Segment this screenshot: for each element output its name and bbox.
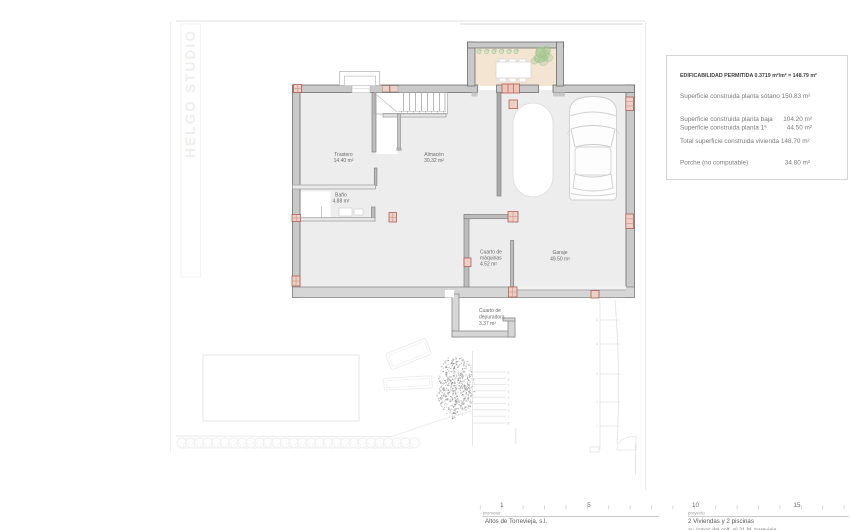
svg-text:4.88 m²: 4.88 m² xyxy=(333,199,350,205)
svg-text:proyecto: proyecto xyxy=(688,511,705,516)
svg-text:3.37 m²: 3.37 m² xyxy=(479,321,496,327)
svg-text:depuradora: depuradora xyxy=(479,315,505,321)
svg-text:1: 1 xyxy=(500,502,504,509)
svg-text:2: 2 xyxy=(596,400,598,404)
svg-text:1: 1 xyxy=(596,424,598,428)
svg-text:3: 3 xyxy=(596,372,598,376)
svg-text:2: 2 xyxy=(508,415,510,419)
svg-text:3: 3 xyxy=(508,409,510,413)
svg-text:8: 8 xyxy=(508,377,510,381)
svg-text:104.20 m²: 104.20 m² xyxy=(783,116,812,123)
svg-text:14.40 m²: 14.40 m² xyxy=(334,158,354,164)
svg-text:4.52 m²: 4.52 m² xyxy=(480,262,497,268)
svg-text:Superficie construida planta s: Superficie construida planta sótano 150.… xyxy=(680,93,810,100)
svg-text:5: 5 xyxy=(508,396,510,400)
svg-text:Superficie construida planta 1: Superficie construida planta 1ª xyxy=(680,125,767,132)
svg-text:EDIFICABILIDAD PERMITIDA 0.371: EDIFICABILIDAD PERMITIDA 0.3719 m²/m² = … xyxy=(680,73,817,79)
svg-text:10: 10 xyxy=(692,502,699,509)
svg-text:Total superficie construida vi: Total superficie construida vivienda 148… xyxy=(680,138,810,145)
svg-text:5: 5 xyxy=(596,318,598,322)
svg-text:2 Viviendas y 2 piscinas: 2 Viviendas y 2 piscinas xyxy=(688,518,754,525)
svg-text:4: 4 xyxy=(596,342,598,346)
svg-text:6: 6 xyxy=(508,390,510,394)
svg-text:9: 9 xyxy=(508,371,510,375)
svg-text:1: 1 xyxy=(508,421,510,425)
svg-text:Cuarto de: Cuarto de xyxy=(479,308,501,314)
svg-text:Superficie construida planta b: Superficie construida planta baja xyxy=(680,116,773,123)
svg-text:44.50 m²: 44.50 m² xyxy=(787,125,812,132)
svg-text:5: 5 xyxy=(587,502,591,509)
svg-text:promotor: promotor xyxy=(483,511,501,516)
svg-text:15: 15 xyxy=(794,502,801,509)
svg-text:49.50 m²: 49.50 m² xyxy=(550,257,570,263)
svg-text:Garaje: Garaje xyxy=(552,250,567,256)
svg-text:Altos de Torrevieja, s.l.: Altos de Torrevieja, s.l. xyxy=(485,518,547,525)
svg-text:HELGO STUDIO: HELGO STUDIO xyxy=(183,29,198,158)
svg-text:4: 4 xyxy=(508,403,510,407)
svg-text:30.32 m²: 30.32 m² xyxy=(424,158,444,164)
svg-text:34.80 m²: 34.80 m² xyxy=(785,160,810,167)
svg-text:Porche (no computable): Porche (no computable) xyxy=(680,160,748,167)
svg-text:7: 7 xyxy=(508,384,510,388)
